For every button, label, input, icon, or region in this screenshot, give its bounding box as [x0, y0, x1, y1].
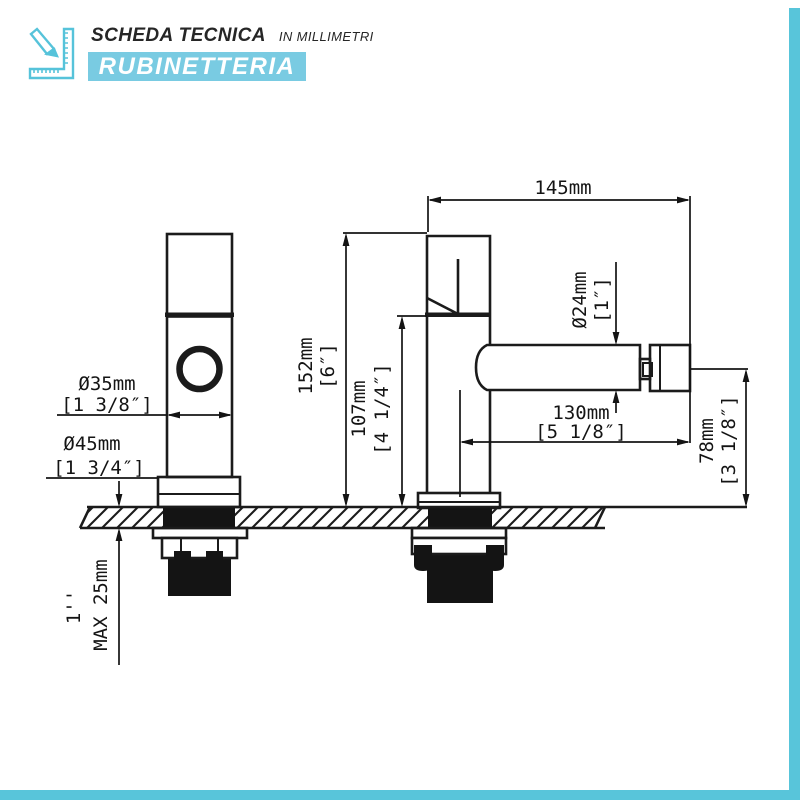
dim-base-diameter-mm: Ø45mm: [63, 433, 120, 455]
dim-total-height-mm: 152mm: [295, 337, 317, 394]
dim-spout-reach-in: [5 1/8″]: [535, 421, 627, 443]
dimension-lines: [46, 196, 748, 665]
dim-spout-to-counter-mm: 78mm: [696, 418, 718, 464]
side-view-faucet: [412, 236, 690, 603]
faucet-technical-drawing: 145mm Ø24mm [1″] 152mm [6″] 107mm [4 1/4…: [0, 0, 800, 800]
dim-spout-to-counter-in: [3 1/8″]: [718, 395, 740, 487]
dim-body-diameter-mm: Ø35mm: [78, 373, 135, 395]
counter-shank-left: [163, 507, 235, 528]
dim-total-height-in: [6″]: [317, 343, 339, 389]
dim-counter-thickness: MAX 25mm: [90, 559, 112, 651]
dimension-arrows: [116, 197, 750, 541]
counter-shank-right: [428, 508, 492, 528]
dim-base-diameter-in: [1 3/4″]: [53, 457, 145, 479]
dim-total-width: 145mm: [534, 177, 591, 199]
threaded-rod-right: [427, 553, 493, 603]
dimension-labels: 145mm Ø24mm [1″] 152mm [6″] 107mm [4 1/4…: [53, 177, 740, 651]
dim-spout-diameter-mm: Ø24mm: [569, 271, 591, 328]
dim-spout-height-in: [4 1/4″]: [371, 363, 393, 455]
spout-outlet-circle: [180, 349, 220, 389]
dim-spout-diameter-in: [1″]: [591, 277, 613, 323]
dim-thread-size: 1'': [63, 590, 85, 624]
aerator-cap: [650, 345, 690, 391]
dim-body-diameter-in: [1 3/8″]: [61, 394, 153, 416]
spout: [476, 345, 640, 390]
technical-sheet-page: SCHEDA TECNICA IN MILLIMETRI RUBINETTERI…: [0, 0, 800, 800]
frame-band-right: [789, 8, 800, 800]
frame-band-bottom: [0, 790, 800, 800]
dim-spout-height-mm: 107mm: [348, 380, 370, 437]
